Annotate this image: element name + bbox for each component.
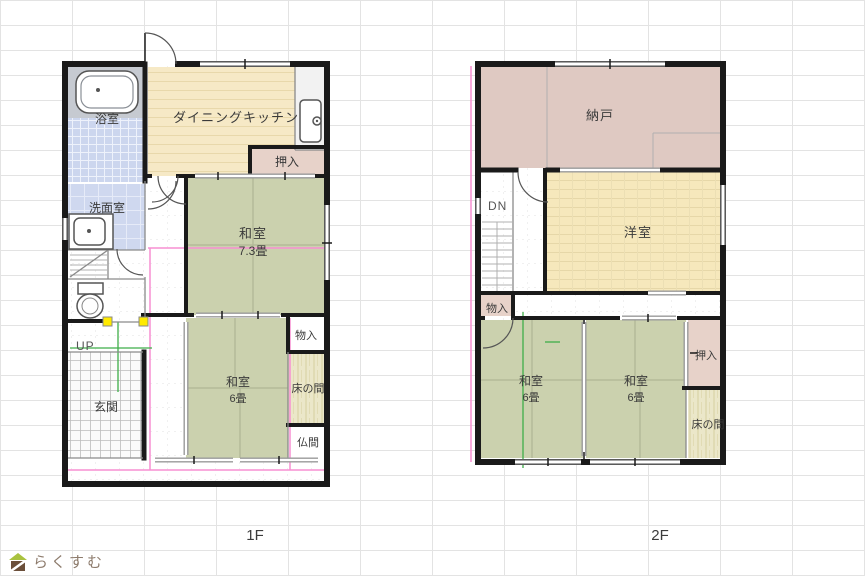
label-1f-washitsu-sub-size: 6畳 (229, 392, 246, 405)
label-1f-washroom: 洗面室 (89, 200, 125, 215)
floorplan-drawing: 浴室 洗面室 ダイニングキッチン 押入 和室 7.3畳 物入 床の間 和室 6畳… (0, 0, 865, 576)
label-2f-washitsu-a: 和室 (519, 373, 543, 388)
label-2f-youshitsu: 洋室 (624, 225, 652, 240)
toilet-icon (77, 283, 103, 318)
label-2f-nando: 納戸 (586, 108, 614, 123)
marker-yellow-left (103, 317, 112, 326)
marker-yellow-right (139, 317, 148, 326)
label-1f-genkan: 玄関 (94, 399, 118, 414)
label-1f-monoire: 物入 (295, 328, 317, 342)
label-1f-washitsu-main: 和室 (239, 226, 267, 241)
label-1f-washitsu-sub: 和室 (226, 374, 250, 389)
label-1f-dining-kitchen: ダイニングキッチン (173, 110, 299, 125)
label-2f-washitsu-a-size: 6畳 (522, 391, 539, 404)
bathtub-icon (76, 71, 138, 113)
label-1f-up: UP (76, 339, 95, 353)
floorplan-canvas: 浴室 洗面室 ダイニングキッチン 押入 和室 7.3畳 物入 床の間 和室 6畳… (0, 0, 865, 576)
room-washitsu-b (586, 320, 686, 458)
label-1f-washitsu-main-size: 7.3畳 (239, 244, 268, 258)
entrance-door-arc (145, 33, 176, 64)
label-1f-bath: 浴室 (95, 111, 119, 126)
label-2f-tokonoma: 床の間 (692, 417, 725, 431)
label-1f-tokonoma: 床の間 (292, 381, 325, 395)
washbasin-icon (69, 214, 113, 249)
room-bath (68, 118, 145, 182)
label-2f-washitsu-b-size: 6畳 (627, 391, 644, 404)
logo-house-icon (8, 552, 28, 572)
label-2f-monoire: 物入 (486, 301, 508, 315)
label-1f-oshiire: 押入 (275, 155, 299, 169)
label-2f-washitsu-b: 和室 (624, 373, 648, 388)
label-1f-butsuma: 仏間 (297, 436, 319, 449)
label-2f-dn: DN (488, 199, 507, 213)
logo: らくすむ (8, 551, 105, 572)
floor2-plan: 納戸 DN 洋室 物入 和室 6畳 和室 6畳 押入 床の間 (471, 59, 725, 468)
floor2-caption: 2F (645, 527, 675, 544)
floor1-caption: 1F (240, 527, 270, 544)
floor1-plan: 浴室 洗面室 ダイニングキッチン 押入 和室 7.3畳 物入 床の間 和室 6畳… (65, 33, 332, 484)
logo-text: らくすむ (33, 551, 105, 572)
label-2f-oshiire: 押入 (695, 348, 717, 362)
